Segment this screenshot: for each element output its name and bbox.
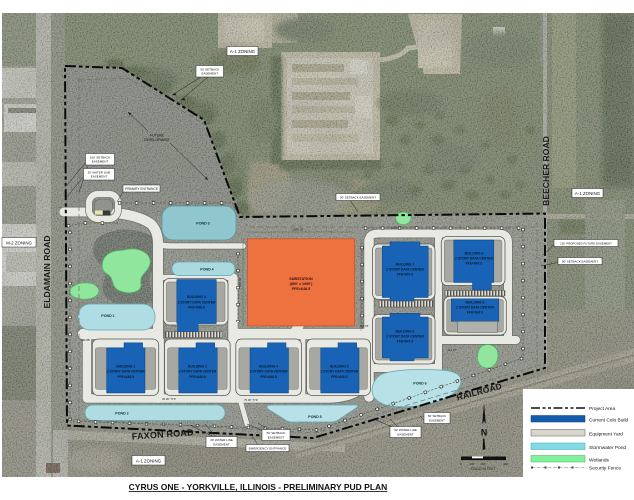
- svg-text:BUILDING 4: BUILDING 4: [259, 365, 278, 369]
- svg-text:EASEMENT: EASEMENT: [213, 442, 230, 446]
- svg-text:BUILDING 9: BUILDING 9: [466, 301, 485, 305]
- svg-text:SUBSTATION: SUBSTATION: [289, 277, 313, 281]
- svg-text:FFE=647.0: FFE=647.0: [397, 273, 414, 277]
- svg-text:75.00' TYP.: 75.00' TYP.: [244, 398, 258, 402]
- svg-text:150' PROPOSED FUTURE EASEMENT: 150' PROPOSED FUTURE EASEMENT: [560, 242, 612, 246]
- svg-text:400': 400': [503, 462, 509, 466]
- svg-text:FFE=647.0: FFE=647.0: [466, 262, 483, 266]
- svg-text:BEECHER ROAD: BEECHER ROAD: [541, 136, 551, 206]
- svg-text:2 STORY DATA CENTER: 2 STORY DATA CENTER: [456, 306, 494, 310]
- svg-text:BUILDING 6: BUILDING 6: [396, 330, 415, 334]
- svg-text:FFE=648.5: FFE=648.5: [117, 375, 134, 379]
- svg-text:1000.00': 1000.00': [292, 228, 304, 232]
- svg-text:-230.88': -230.88': [80, 338, 90, 342]
- svg-text:SCALE IN FEET: SCALE IN FEET: [470, 467, 495, 471]
- svg-text:2 STORY DATA CENTER: 2 STORY DATA CENTER: [179, 370, 217, 374]
- svg-text:BUILDING 2: BUILDING 2: [188, 365, 207, 369]
- svg-text:PRIMARY ENTRANCE: PRIMARY ENTRANCE: [125, 187, 158, 191]
- svg-text:FFE=647.5: FFE=647.5: [397, 340, 414, 344]
- svg-text:EASEMENT: EASEMENT: [429, 418, 445, 422]
- svg-text:FFE=648.5: FFE=648.5: [292, 287, 310, 291]
- svg-text:N: N: [481, 428, 487, 438]
- svg-text:2 STORY DATA CENTER: 2 STORY DATA CENTER: [386, 335, 424, 339]
- svg-text:EASEMENT: EASEMENT: [92, 160, 109, 164]
- svg-text:POND 5: POND 5: [308, 415, 321, 419]
- svg-text:BUILDING 8: BUILDING 8: [465, 252, 484, 256]
- svg-text:Stormwater Pond: Stormwater Pond: [589, 445, 626, 451]
- svg-text:BUILDING 3: BUILDING 3: [187, 295, 206, 299]
- svg-text:800.00': 800.00': [238, 277, 242, 287]
- svg-text:Wetlands: Wetlands: [589, 458, 610, 464]
- svg-text:EASEMENT: EASEMENT: [268, 435, 285, 439]
- svg-text:2 STORY DATA CENTER: 2 STORY DATA CENTER: [107, 370, 145, 374]
- svg-text:POND 2: POND 2: [115, 412, 128, 416]
- svg-text:Security Fence: Security Fence: [589, 466, 621, 472]
- svg-text:POND 4: POND 4: [200, 268, 213, 272]
- svg-text:Current Colo Build: Current Colo Build: [589, 418, 629, 424]
- svg-text:EASEMENT: EASEMENT: [397, 432, 414, 436]
- svg-text:1150.00': 1150.00': [391, 226, 402, 230]
- svg-text:A-1 ZONING: A-1 ZONING: [230, 49, 256, 54]
- svg-text:BUILDING 7: BUILDING 7: [396, 263, 415, 267]
- svg-text:2 STORY DATA CENTER: 2 STORY DATA CENTER: [386, 268, 424, 272]
- svg-text:FUTURE: FUTURE: [150, 134, 164, 138]
- svg-text:POND 1: POND 1: [101, 314, 114, 318]
- svg-text:POND 6: POND 6: [413, 382, 426, 386]
- svg-text:FFE=648.5: FFE=648.5: [260, 375, 277, 379]
- svg-text:Equipment Yard: Equipment Yard: [589, 432, 623, 438]
- svg-text:FFE=647.0: FFE=647.0: [467, 311, 484, 315]
- svg-text:ELDAMAIN ROAD: ELDAMAIN ROAD: [42, 235, 52, 308]
- svg-text:2 STORY DATA CENTER: 2 STORY DATA CENTER: [455, 257, 493, 261]
- svg-text:2 STORY DATA CENTER: 2 STORY DATA CENTER: [178, 300, 216, 304]
- svg-text:A-1 ZONING: A-1 ZONING: [575, 191, 601, 196]
- svg-text:M-2 ZONING: M-2 ZONING: [6, 240, 32, 245]
- svg-text:Project Area: Project Area: [589, 406, 615, 412]
- svg-text:POND 3: POND 3: [196, 222, 209, 226]
- svg-text:100': 100': [469, 462, 475, 466]
- svg-text:BUILDING 1: BUILDING 1: [116, 365, 135, 369]
- svg-text:(800' x 1000'): (800' x 1000'): [290, 282, 313, 286]
- svg-text:BUILDING 5: BUILDING 5: [330, 365, 349, 369]
- svg-text:FFE=648.5: FFE=648.5: [189, 375, 206, 379]
- svg-text:125.78': 125.78': [359, 324, 369, 328]
- svg-text:2 STORY DATA CENTER: 2 STORY DATA CENTER: [320, 370, 358, 374]
- svg-text:CYRUS ONE - YORKVILLE, ILLINOI: CYRUS ONE - YORKVILLE, ILLINOIS - PRELIM…: [129, 482, 388, 492]
- svg-text:221.07': 221.07': [447, 348, 457, 352]
- svg-text:EMERGENCY ENTRANCE: EMERGENCY ENTRANCE: [249, 447, 287, 451]
- svg-text:A-1 ZONING: A-1 ZONING: [136, 458, 162, 463]
- svg-text:FFE=648.5: FFE=648.5: [188, 305, 205, 309]
- svg-text:200': 200': [480, 462, 486, 466]
- svg-text:EASEMENT: EASEMENT: [91, 175, 108, 179]
- svg-text:FFE=648.5: FFE=648.5: [331, 375, 348, 379]
- svg-text:50' SETBACK EASEMENT: 50' SETBACK EASEMENT: [340, 196, 376, 200]
- svg-text:EASEMENT: EASEMENT: [202, 72, 219, 76]
- svg-text:DEVELOPMENT: DEVELOPMENT: [144, 138, 170, 142]
- svg-text:2 STORY DATA CENTER: 2 STORY DATA CENTER: [250, 370, 288, 374]
- svg-text:80' SETBACK EASEMENT: 80' SETBACK EASEMENT: [562, 260, 598, 264]
- svg-text:36.00' TYP.: 36.00' TYP.: [162, 397, 176, 401]
